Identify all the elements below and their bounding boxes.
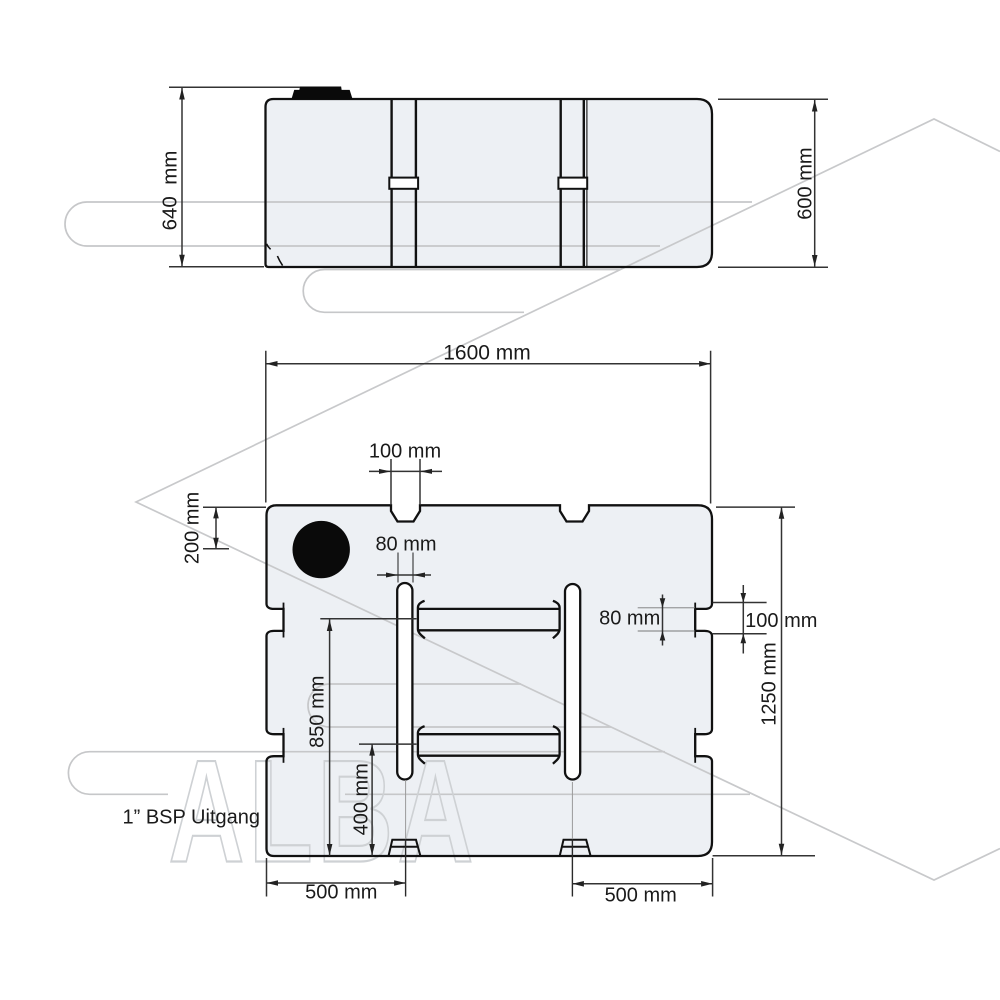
svg-text:500 mm: 500 mm (605, 885, 677, 907)
svg-text:400 mm: 400 mm (351, 763, 373, 835)
svg-text:600 mm: 600 mm (795, 147, 817, 219)
svg-text:500 mm: 500 mm (305, 882, 377, 904)
svg-text:80 mm: 80 mm (599, 608, 660, 630)
svg-text:100 mm: 100 mm (745, 610, 817, 632)
svg-text:80 mm: 80 mm (375, 534, 436, 556)
svg-text:640 mm: 640 mm (159, 151, 182, 231)
svg-text:1250 mm: 1250 mm (759, 642, 781, 725)
svg-text:850 mm: 850 mm (307, 676, 329, 748)
svg-text:200 mm: 200 mm (182, 492, 204, 564)
svg-text:1” BSP Uitgang: 1” BSP Uitgang (123, 807, 261, 829)
svg-text:1600 mm: 1600 mm (443, 342, 531, 365)
svg-text:100 mm: 100 mm (369, 441, 441, 463)
